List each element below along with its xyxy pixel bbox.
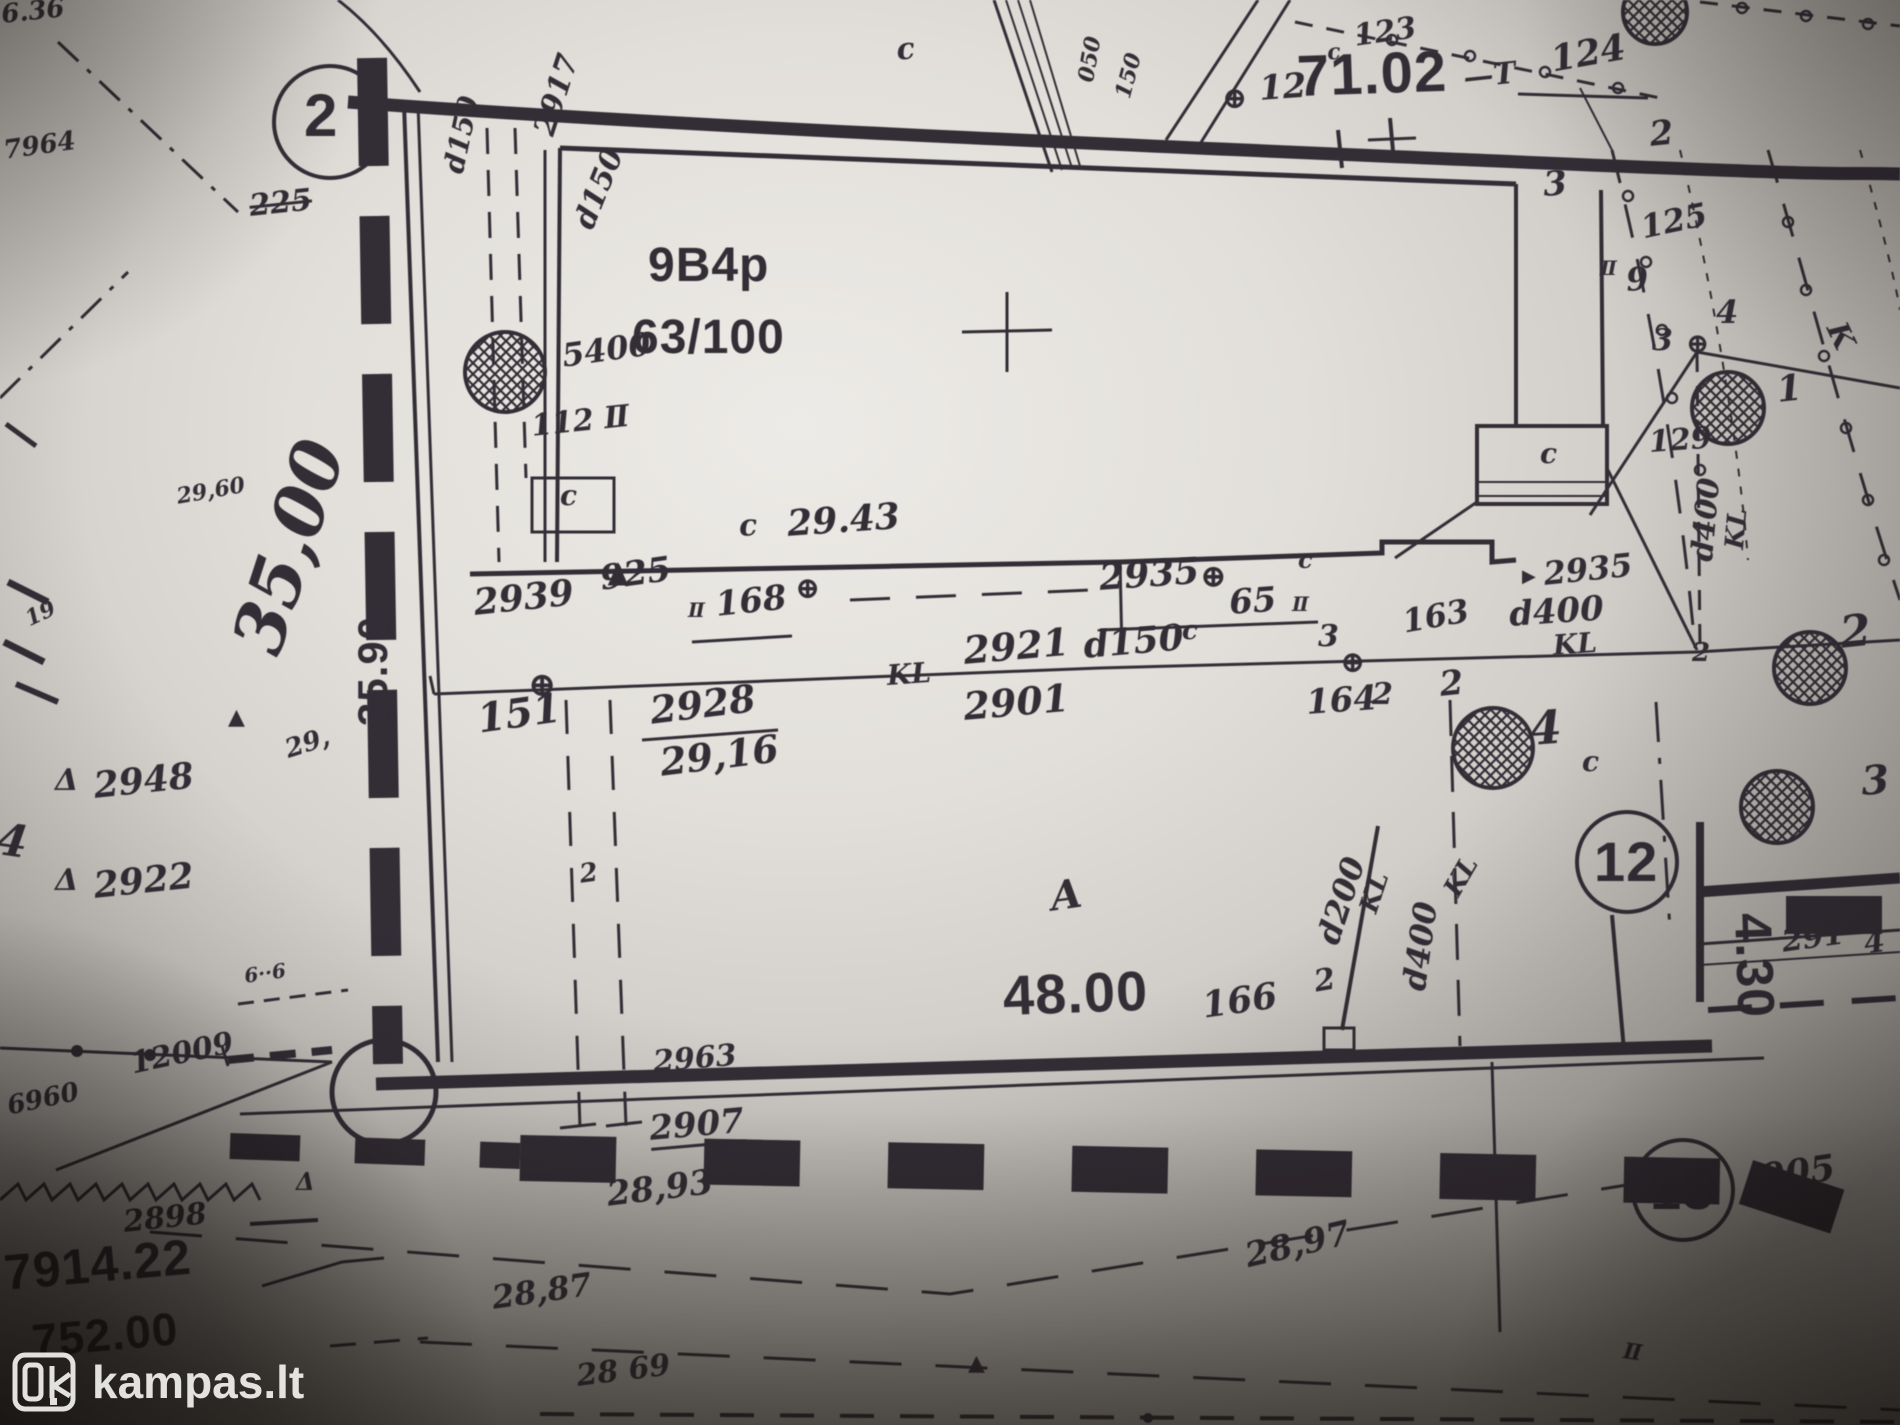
mark-12009: 12009 bbox=[128, 1028, 236, 1079]
mark-ii-168: Ⅱ bbox=[688, 600, 705, 620]
frag-top-left: 6.36 bbox=[0, 0, 66, 28]
mark-2921: 2921 bbox=[962, 623, 1071, 670]
mark-2935-r: 2935 bbox=[1542, 549, 1634, 590]
mark-29: 29, bbox=[282, 724, 333, 763]
mark-2-164: 2 bbox=[1372, 680, 1393, 710]
mark-125: 125 bbox=[1638, 198, 1710, 243]
point-circle-13: 13 bbox=[1650, 1162, 1714, 1218]
mark-112: 112 Ⅱ bbox=[530, 402, 631, 442]
tri-b: ▲ bbox=[968, 1352, 985, 1374]
delta-zigzag: Δ bbox=[296, 1170, 315, 1194]
delta-2922: Δ bbox=[55, 866, 78, 896]
dim-2943: 29.43 bbox=[786, 498, 901, 542]
dim-c-2943: c bbox=[738, 511, 758, 542]
dim-3590-print: 35.90 bbox=[352, 616, 394, 726]
mark-9: 9 bbox=[1625, 262, 1649, 295]
mark-2869: 28 69 bbox=[575, 1351, 672, 1392]
mark-19: 19 bbox=[22, 597, 59, 630]
oplus-12: ⊕ bbox=[1222, 84, 1247, 114]
annex-c: c bbox=[1540, 440, 1557, 468]
oplus-c: ⊕ bbox=[1340, 648, 1365, 678]
mark-168: 168 bbox=[714, 581, 788, 622]
mark-2893: 28,93 bbox=[605, 1165, 715, 1212]
mark-124: 124 bbox=[1548, 29, 1628, 78]
rot-050: 050 bbox=[1075, 35, 1105, 84]
mark-K-r: K bbox=[1821, 318, 1859, 354]
mark-c-top: c bbox=[895, 34, 916, 66]
mark-2-kl: 2 bbox=[1692, 640, 1710, 666]
mark-925: 925 bbox=[598, 552, 673, 596]
dim-430: 4.30 bbox=[1726, 912, 1782, 1019]
mark-2928: 2928 bbox=[648, 679, 758, 730]
mark-2917: 2917 bbox=[530, 51, 584, 140]
tri-2935: ▶ bbox=[1522, 568, 1536, 586]
survey-map-photo: 6.3679642225d150d15029175400112 Ⅱc9B4p63… bbox=[0, 0, 1900, 1425]
mark-2916: 29,16 bbox=[658, 729, 781, 781]
mark-2939: 2939 bbox=[472, 575, 575, 621]
pipe-d400-rot: d400 bbox=[1688, 477, 1725, 563]
rot-150: 150 bbox=[1112, 51, 1145, 101]
scribble-225: 225 bbox=[248, 185, 313, 221]
mark-163: 163 bbox=[1400, 594, 1471, 637]
dim-3500-hand: 35,00 bbox=[222, 432, 356, 662]
mark-2897: 28,97 bbox=[1242, 1216, 1353, 1273]
mark-c-2921: c bbox=[1182, 618, 1198, 644]
mark-2-tr: 2 bbox=[1648, 116, 1675, 152]
point-circle-12: 12 bbox=[1594, 834, 1658, 890]
oplus-a: ⊕ bbox=[795, 574, 820, 604]
mark-129: 129 bbox=[1648, 424, 1713, 458]
oplus-junction-r: ⊕ bbox=[1686, 330, 1709, 358]
mark-3-r: 3 bbox=[1652, 326, 1673, 356]
mark-4-291: 4 bbox=[1862, 927, 1887, 960]
mark-c-65: c bbox=[1298, 548, 1313, 572]
scribble-4-edge: 4 bbox=[0, 818, 30, 866]
tri-a: ▲ bbox=[228, 706, 245, 728]
mark-ii-9: Ⅱ bbox=[1600, 258, 1617, 278]
mark-2887: 28,87 bbox=[490, 1268, 594, 1314]
mark-2-pipe: 2 bbox=[578, 859, 600, 887]
mark-65: 65 bbox=[1228, 583, 1278, 620]
oplus-b: ⊕ bbox=[1200, 560, 1227, 592]
kampas-logo-icon bbox=[12, 1352, 76, 1412]
mark-2935-c: 2935 bbox=[1098, 553, 1200, 596]
mark-6960: 6960 bbox=[5, 1079, 81, 1119]
pipe-d150-a: d150 bbox=[440, 94, 484, 176]
watermark-text: kampas.lt bbox=[92, 1355, 304, 1409]
mark-4-r: 4 bbox=[1716, 296, 1738, 328]
pipe-d400-rot2: d400 bbox=[1398, 900, 1442, 993]
mark-KL-rot: KL bbox=[1722, 507, 1751, 550]
mark-2901: 2901 bbox=[962, 679, 1071, 726]
mark-KL-b: KL bbox=[1552, 629, 1598, 660]
mark-3-tr: 3 bbox=[1542, 166, 1568, 202]
mark-KL-rot-d: KL bbox=[1440, 853, 1483, 901]
mark-1-r: 1 bbox=[1775, 369, 1804, 407]
mark-291: 291 bbox=[1780, 919, 1846, 957]
zone-A: A bbox=[1048, 874, 1084, 918]
dim-4800: 48.00 bbox=[1002, 963, 1149, 1024]
parcel-code: 9B4p bbox=[648, 242, 769, 290]
mark-2922: 2922 bbox=[92, 858, 195, 904]
oplus-e: ⊕ bbox=[528, 668, 557, 702]
mark-2963: 2963 bbox=[652, 1041, 738, 1078]
mark-2907: 2907 bbox=[648, 1104, 746, 1151]
watermark: kampas.lt bbox=[12, 1352, 304, 1412]
mark-3-kl: 3 bbox=[1318, 622, 1339, 652]
mark-4-12: 4 bbox=[1528, 704, 1563, 752]
mark-791422: 7914.22 bbox=[2, 1232, 193, 1298]
mark-KL-a: KL bbox=[886, 659, 932, 690]
mark-2-big-r: 2 bbox=[1838, 609, 1873, 656]
delta-2948: Δ bbox=[55, 766, 78, 796]
shed-c: c bbox=[560, 482, 577, 510]
mark-2948: 2948 bbox=[92, 758, 195, 804]
parcel-share: 63/100 bbox=[632, 314, 785, 362]
fence-6-6: 6··6 bbox=[243, 960, 287, 986]
mark-c-12: c bbox=[1582, 748, 1599, 776]
pipe-d150-b: d150 bbox=[570, 144, 629, 233]
mark-dash-T: —T bbox=[1462, 59, 1517, 94]
frag-7964: 7964 bbox=[2, 128, 77, 164]
mark-2-166: 2 bbox=[1312, 964, 1338, 997]
label-layer: 6.3679642225d150d15029175400112 Ⅱc9B4p63… bbox=[0, 0, 1900, 1425]
elev-7102: 71.02 bbox=[1296, 43, 1448, 106]
mark-ii-bottom: Ⅱ bbox=[1622, 1340, 1643, 1364]
mark-905: 905 bbox=[1758, 1150, 1837, 1196]
mark-164: 164 bbox=[1305, 681, 1378, 720]
point-circle-2: 2 bbox=[304, 86, 338, 146]
mark-166: 166 bbox=[1200, 978, 1279, 1024]
mark-3-br: 3 bbox=[1860, 760, 1891, 802]
mark-2-163: 2 bbox=[1438, 666, 1465, 702]
mark-ii-65: Ⅱ bbox=[1292, 594, 1309, 614]
pipe-d150-c: d150 bbox=[1082, 619, 1185, 664]
mark-2960: 29,60 bbox=[175, 474, 247, 508]
